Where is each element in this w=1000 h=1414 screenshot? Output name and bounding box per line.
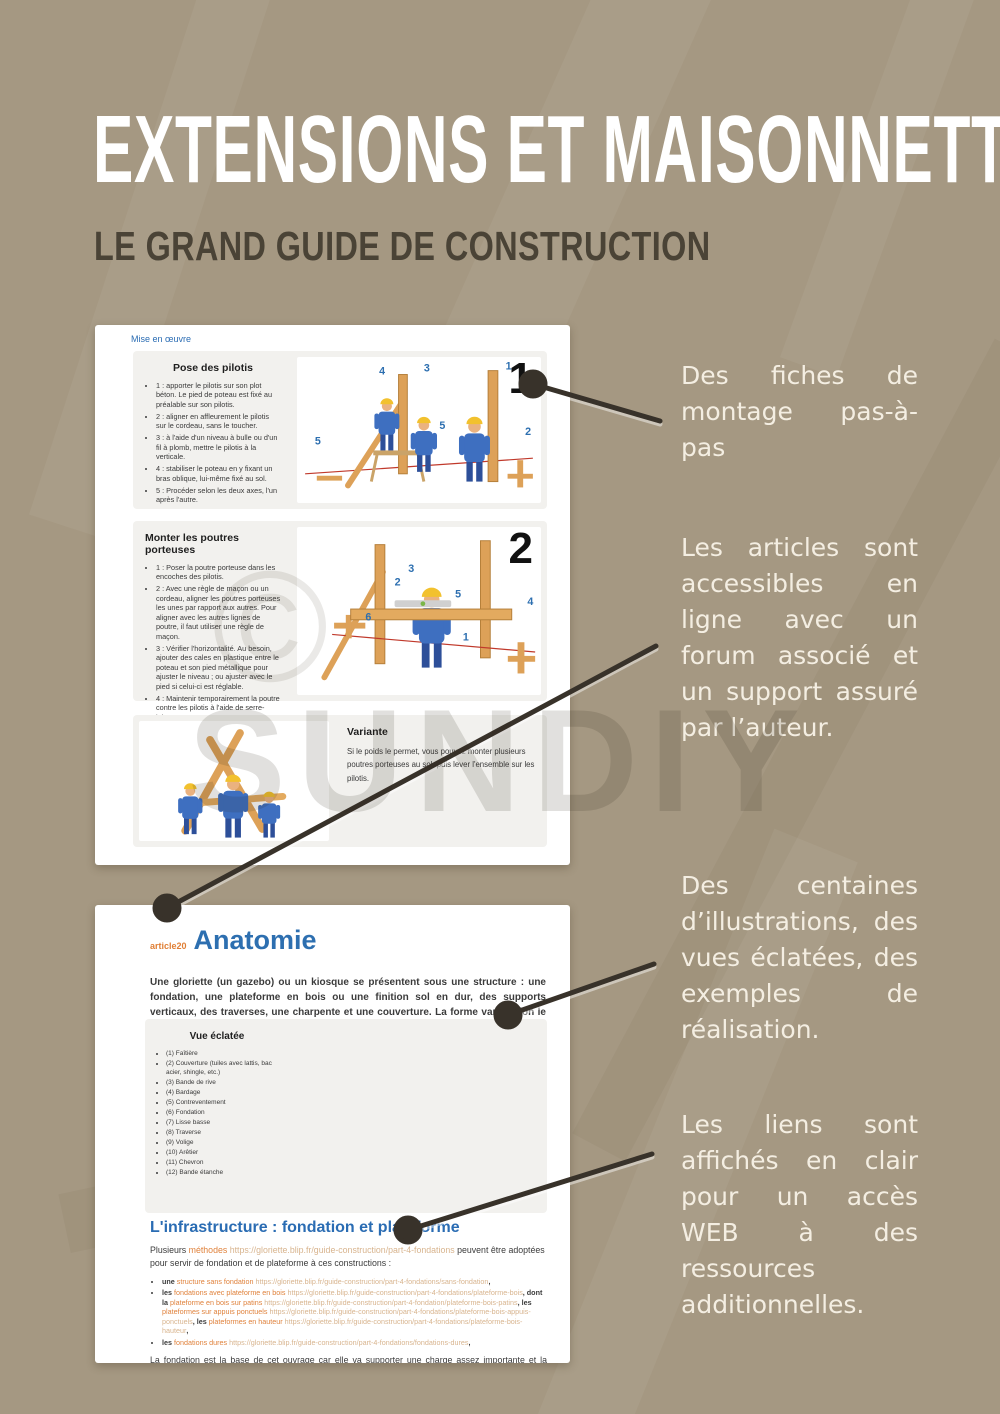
text-run: les [162,1288,174,1297]
poutres-illustration: 3 2 6 5 4 1 2 [297,527,541,695]
section-variante: Variante Si le poids le permet, vous pou… [133,715,547,847]
figure-label: 3 [424,363,430,375]
text-run: , [468,1338,470,1347]
url-text: https://gloriette.blip.fr/guide-construc… [285,1288,522,1297]
text-run: , [488,1277,490,1286]
exploded-item: (3) Bande de rive [166,1079,277,1088]
exploded-item: (5) Contreventement [166,1099,277,1108]
section-title: Pose des pilotis [145,362,281,374]
pilotis-drawing: 4 3 1 5 5 2 [297,357,541,503]
figure-label: 4 [379,366,385,378]
section-title: Monter les poutres porteuses [145,532,281,556]
infra-bullet: les fondations dures https://gloriette.b… [162,1338,547,1348]
figure-label: 3 [408,563,414,575]
exploded-item: (1) Faîtière [166,1050,277,1059]
variante-text: Si le poids le permet, vous pouvez monte… [347,745,537,785]
figure-label: 5 [455,588,461,600]
callout-fiches-montage: Des fiches de montage pas-à-pas [681,358,918,466]
exploded-item: (9) Volige [166,1139,277,1148]
vue-eclatee-box: Vue éclatée (1) Faîtière (2) Couverture … [145,1019,547,1213]
figure-label: 4 [527,596,533,608]
figure-label: 2 [525,426,531,438]
method-link: structure sans fondation [177,1277,254,1286]
anatomie-article-panel: article20Anatomie Une gloriette (un gaze… [95,905,570,1363]
exploded-item: (12) Bande étanche [166,1169,277,1178]
infrastructure-footer: La fondation est la base de cet ouvrage … [150,1354,547,1363]
method-link: plateformes sur appuis ponctuels [162,1307,267,1316]
section-title: Variante [347,726,537,738]
infrastructure-section: L'infrastructure : fondation et platefor… [150,1219,547,1363]
step-item: 2 : aligner en affleurement le pilotis s… [156,412,281,431]
text-run: les [162,1338,174,1347]
method-link: plateformes en hauteur [209,1317,283,1326]
infrastructure-list: une structure sans fondation https://glo… [150,1277,547,1348]
section-poutres-porteuses: Monter les poutres porteuses 1 : Poser l… [133,521,547,701]
poutres-drawing: 3 2 6 5 4 1 [297,527,541,695]
method-link: fondations dures [174,1338,227,1347]
step-list: 1 : apporter le pilotis sur son plot bét… [145,381,281,505]
step-item: 2 : Avec une règle de maçon ou un cordea… [156,584,281,641]
infrastructure-intro: Plusieurs méthodes https://gloriette.bli… [150,1244,547,1270]
callout-liens: Les liens sont affichés en clair pour un… [681,1107,918,1323]
url-text: https://gloriette.blip.fr/guide-construc… [227,1245,457,1255]
text-run: , les [518,1298,532,1307]
url-text: https://gloriette.blip.fr/guide-construc… [254,1277,489,1286]
vue-eclatee-text-column: Vue éclatée (1) Faîtière (2) Couverture … [145,1019,287,1213]
infrastructure-title: L'infrastructure : fondation et platefor… [150,1219,547,1237]
text-run: une [162,1277,177,1286]
figure-label: 5 [439,420,445,432]
montage-sheet-panel: Mise en œuvre Pose des pilotis 1 : appor… [95,325,570,865]
text-run: , les [193,1317,209,1326]
infra-bullet: les fondations avec plateforme en bois h… [162,1288,547,1336]
section-text-column: Variante Si le poids le permet, vous pou… [335,715,547,847]
vue-eclatee-title: Vue éclatée [157,1031,277,1042]
variante-illustration [139,721,329,841]
step-item: 3 : à l'aide d'un niveau à bulle ou d'un… [156,433,281,461]
exploded-item: (7) Lisse basse [166,1119,277,1128]
step-item: 5 : Procéder selon les deux axes, l'un a… [156,486,281,505]
method-link: méthodes [189,1245,228,1255]
exploded-item: (8) Traverse [166,1129,277,1138]
variante-drawing [139,721,329,841]
section-text-column: Monter les poutres porteuses 1 : Poser l… [133,521,291,701]
poster-page: EXTENSIONS ET MAISONNETTES LE GRAND GUID… [0,0,1000,1414]
figure-label: 6 [365,612,371,624]
method-link: fondations avec plateforme en bois [174,1288,285,1297]
method-link: plateforme en bois sur patins [170,1298,262,1307]
section-pose-des-pilotis: Pose des pilotis 1 : apporter le pilotis… [133,351,547,509]
figure-label: 1 [463,631,469,643]
step-item: 4 : stabiliser le poteau en y fixant un … [156,464,281,483]
exploded-item: (11) Chevron [166,1159,277,1168]
callout-illustrations: Des centaines d’illustrations, des vues … [681,868,918,1048]
article-title: Anatomie [194,925,317,955]
text-run: Plusieurs [150,1245,189,1255]
step-item: 1 : Poser la poutre porteuse dans les en… [156,563,281,582]
exploded-list: (1) Faîtière (2) Couverture (tuiles avec… [157,1050,277,1178]
figure-label: 5 [315,436,321,448]
sheet-number: 1 [509,357,533,401]
breadcrumb: Mise en œuvre [131,334,191,344]
exploded-item: (6) Fondation [166,1109,277,1118]
section-text-column: Pose des pilotis 1 : apporter le pilotis… [133,351,291,509]
infra-bullet: une structure sans fondation https://glo… [162,1277,547,1287]
exploded-item: (4) Bardage [166,1089,277,1098]
step-item: 3 : Vérifier l'horizontalité. Au besoin,… [156,644,281,691]
article-heading: article20Anatomie [150,925,317,956]
page-title: EXTENSIONS ET MAISONNETTES [93,102,1000,198]
sheet-number: 2 [509,527,533,571]
page-subtitle: LE GRAND GUIDE DE CONSTRUCTION [94,226,710,267]
callout-articles-en-ligne: Les articles sont accessibles en ligne a… [681,530,918,746]
pilotis-illustration: 4 3 1 5 5 2 1 [297,357,541,503]
url-text: https://gloriette.blip.fr/guide-construc… [262,1298,517,1307]
text-run: , [186,1326,188,1335]
exploded-item: (2) Couverture (tuiles avec lattis, bac … [166,1060,277,1077]
url-text: https://gloriette.blip.fr/guide-construc… [227,1338,468,1347]
article-tag: article20 [150,941,187,951]
exploded-item: (10) Arêtier [166,1149,277,1158]
step-item: 1 : apporter le pilotis sur son plot bét… [156,381,281,409]
figure-label: 2 [395,577,401,589]
